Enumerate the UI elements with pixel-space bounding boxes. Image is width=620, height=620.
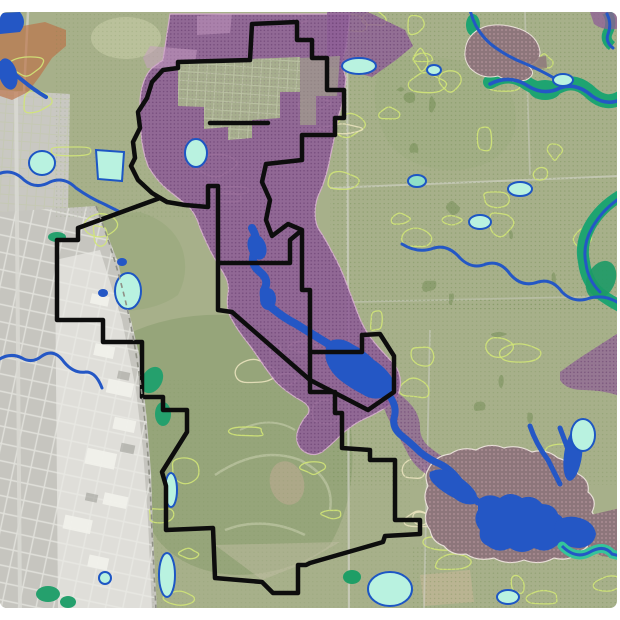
map-viewport[interactable] bbox=[0, 0, 620, 620]
pond-large-south bbox=[368, 572, 412, 606]
map-canvas[interactable] bbox=[0, 0, 620, 620]
